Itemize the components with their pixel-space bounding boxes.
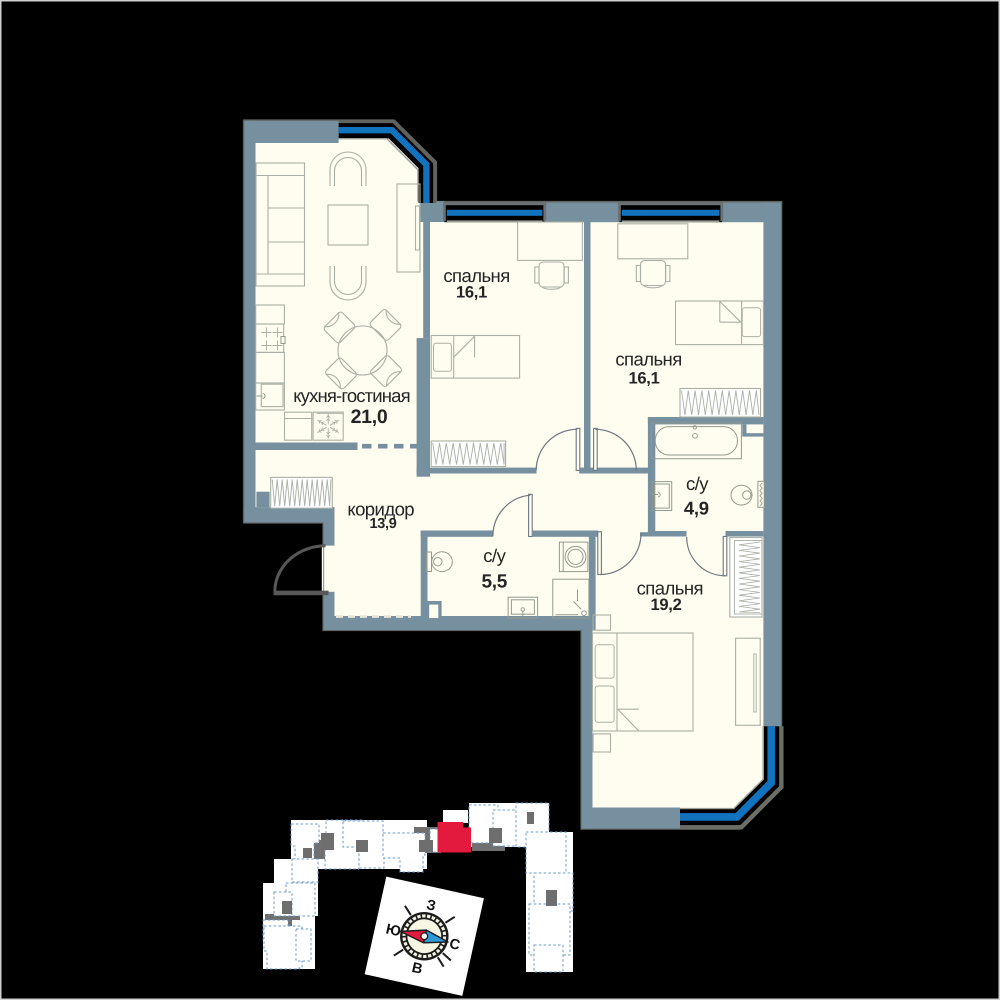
svg-text:13,9: 13,9 <box>369 516 396 532</box>
svg-text:с/у: с/у <box>686 473 709 494</box>
svg-text:с/у: с/у <box>483 545 506 566</box>
svg-text:4,9: 4,9 <box>684 498 709 519</box>
svg-text:19,2: 19,2 <box>651 596 682 614</box>
svg-text:5,5: 5,5 <box>482 572 508 593</box>
svg-text:16,1: 16,1 <box>456 284 487 302</box>
svg-text:кухня-гостиная: кухня-гостиная <box>293 385 410 406</box>
svg-text:16,1: 16,1 <box>629 369 660 387</box>
svg-text:21,0: 21,0 <box>351 406 388 428</box>
svg-text:спальня: спальня <box>615 349 681 370</box>
